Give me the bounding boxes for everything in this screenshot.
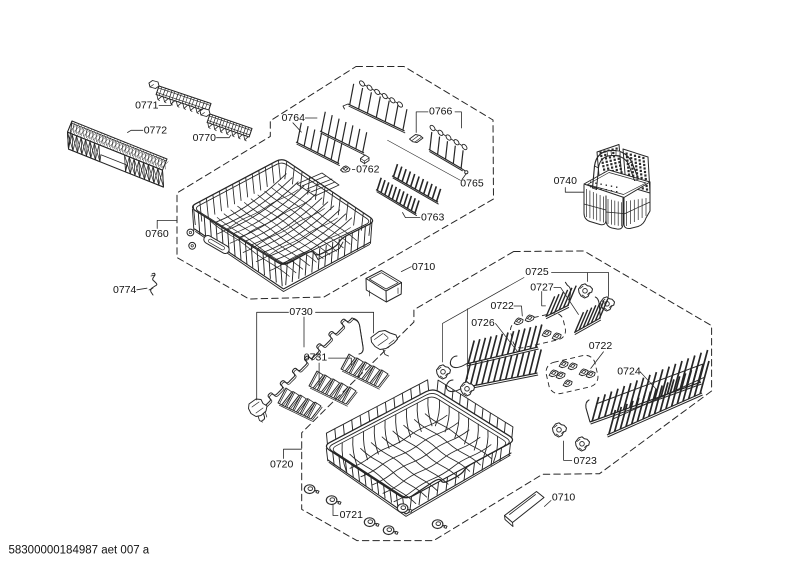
svg-text:0725: 0725 bbox=[525, 266, 549, 278]
svg-text:0731: 0731 bbox=[304, 352, 328, 364]
svg-text:0710: 0710 bbox=[412, 261, 436, 273]
svg-text:0722: 0722 bbox=[589, 340, 613, 352]
svg-text:0763: 0763 bbox=[421, 211, 445, 223]
svg-text:0766: 0766 bbox=[429, 106, 453, 118]
svg-text:0772: 0772 bbox=[144, 124, 168, 136]
svg-text:0770: 0770 bbox=[193, 132, 217, 144]
svg-text:0721: 0721 bbox=[340, 509, 364, 521]
svg-text:58300000184987 aet 007 a: 58300000184987 aet 007 a bbox=[9, 545, 150, 557]
svg-text:0764: 0764 bbox=[282, 112, 306, 124]
svg-text:0730: 0730 bbox=[289, 306, 313, 318]
svg-text:0724: 0724 bbox=[617, 366, 641, 378]
svg-text:0760: 0760 bbox=[145, 228, 169, 240]
svg-text:0726: 0726 bbox=[471, 317, 495, 329]
svg-text:0710: 0710 bbox=[552, 492, 576, 504]
svg-text:0723: 0723 bbox=[574, 455, 598, 467]
svg-text:0722: 0722 bbox=[491, 300, 515, 312]
svg-text:0765: 0765 bbox=[460, 177, 484, 189]
svg-text:0762: 0762 bbox=[356, 164, 380, 176]
svg-text:0771: 0771 bbox=[135, 100, 159, 112]
svg-text:0740: 0740 bbox=[554, 175, 578, 187]
svg-text:0720: 0720 bbox=[270, 459, 294, 471]
svg-text:0774: 0774 bbox=[113, 284, 137, 296]
